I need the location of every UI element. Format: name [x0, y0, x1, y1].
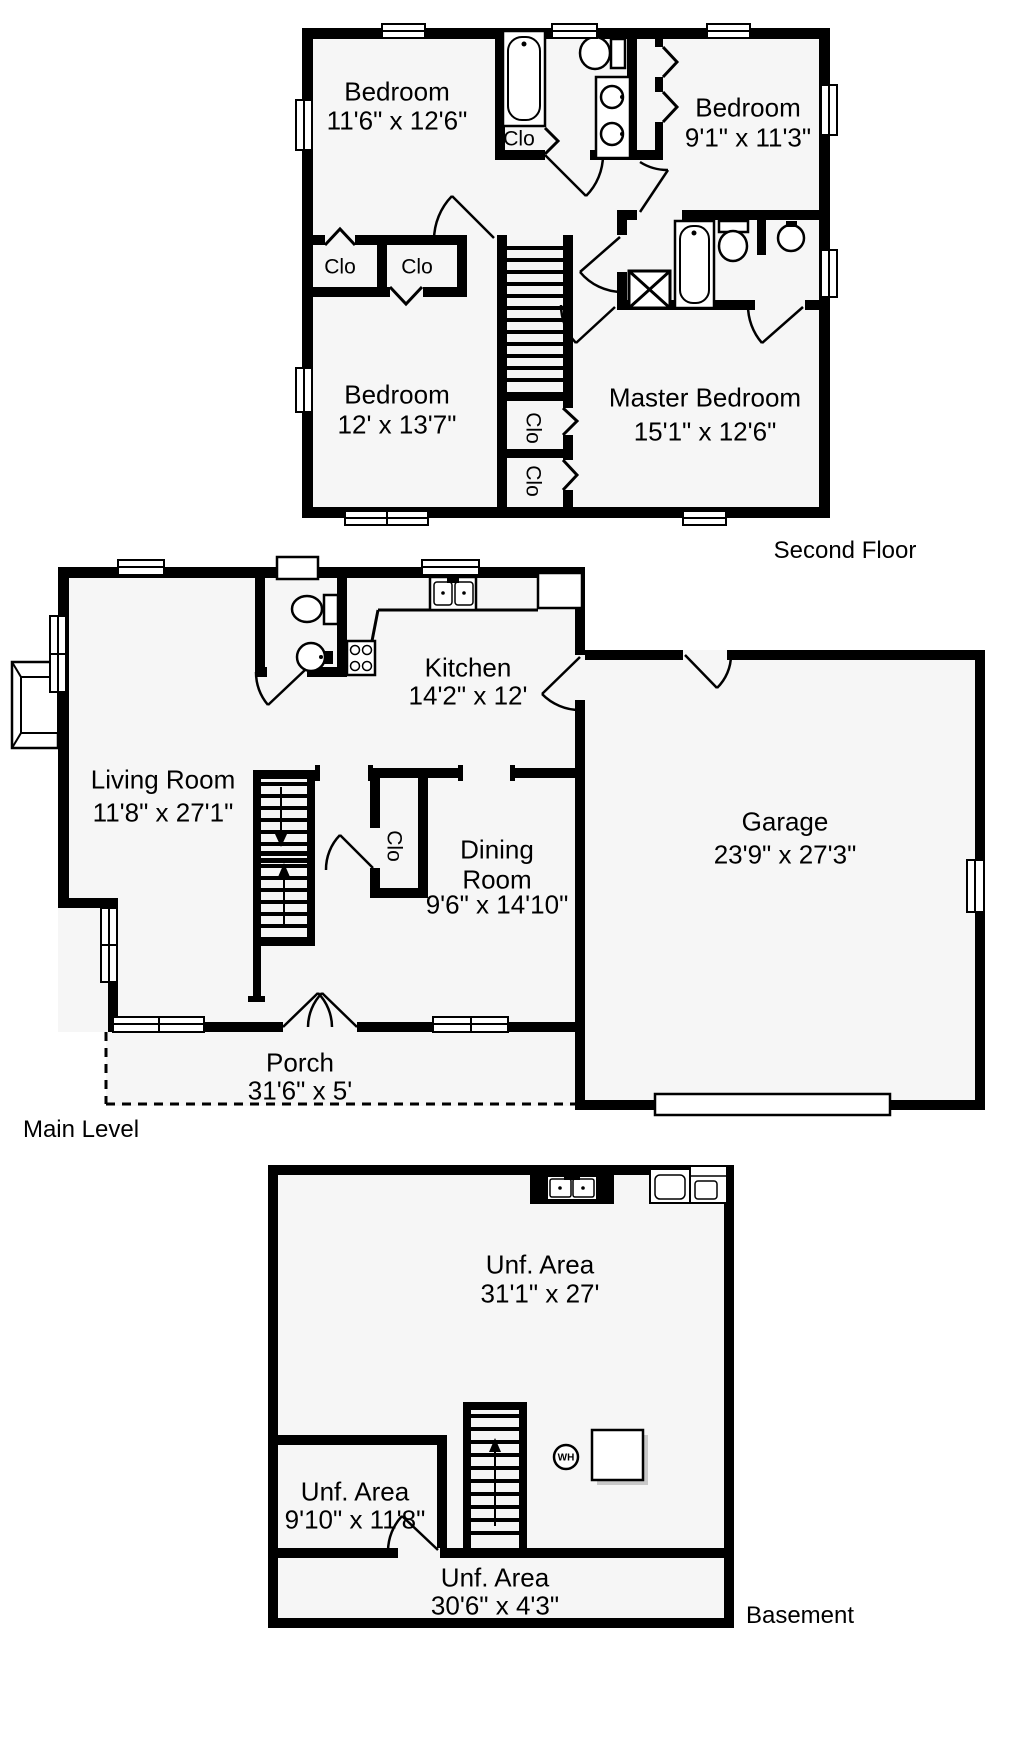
washer-icon	[650, 1169, 690, 1203]
closet-label: Clo	[382, 830, 405, 862]
room-dims-unf-area-main: 31'1" x 27'	[481, 1280, 600, 1309]
closet-label: Clo	[503, 127, 535, 150]
stove-icon	[347, 641, 375, 675]
room-label-garage: Garage	[742, 808, 829, 837]
room-dims-master-bedroom: 15'1" x 12'6"	[634, 418, 777, 447]
room-label-unf-area-main: Unf. Area	[486, 1251, 594, 1280]
basement-area	[268, 1165, 734, 1628]
room-dims-bedroom-bottom-left: 12' x 13'7"	[338, 411, 457, 440]
closet-label: Clo	[521, 465, 544, 497]
room-dims-living-room: 11'8" x 27'1"	[93, 799, 234, 828]
closet-label: Clo	[401, 255, 433, 278]
room-dims-unf-area-strip: 30'6" x 4'3"	[431, 1592, 559, 1621]
bathtub-icon	[675, 221, 714, 308]
floorplan-page: Bedroom 11'6" x 12'6" Bedroom 9'1" x 11'…	[0, 0, 1013, 1745]
room-label-kitchen: Kitchen	[425, 654, 512, 683]
furnace-icon	[592, 1430, 648, 1485]
room-label-porch: Porch	[266, 1049, 334, 1078]
room-label-unf-area-small: Unf. Area	[301, 1478, 409, 1507]
closet-label: Clo	[324, 255, 356, 278]
laundry-sink-icon	[547, 1176, 597, 1200]
room-dims-garage: 23'9" x 27'3"	[714, 841, 857, 870]
room-label-living-room: Living Room	[91, 766, 236, 795]
water-heater-label: WH	[558, 1453, 575, 1464]
room-label-bedroom-bottom-left: Bedroom	[344, 381, 450, 410]
basement-plan	[268, 1165, 734, 1628]
garage-door	[655, 1094, 890, 1115]
floor-title-second: Second Floor	[774, 538, 917, 564]
floor-title-main: Main Level	[23, 1117, 139, 1143]
toilet-icon	[580, 37, 625, 69]
room-dims-bedroom-top-right: 9'1" x 11'3"	[685, 124, 811, 153]
room-label-unf-area-strip: Unf. Area	[441, 1564, 549, 1593]
garage-area	[585, 650, 985, 1110]
room-label-dining-room: Dining	[460, 836, 534, 865]
room-dims-unf-area-small: 9'10" x 11'8"	[285, 1506, 426, 1535]
room-label-bedroom-top-left: Bedroom	[344, 78, 450, 107]
linen-cabinet-icon	[629, 271, 670, 308]
room-label-bedroom-top-right: Bedroom	[695, 94, 801, 123]
floor-title-basement: Basement	[746, 1603, 854, 1629]
room-dims-kitchen: 14'2" x 12'	[409, 682, 528, 711]
dryer-icon	[690, 1166, 727, 1203]
double-sink-icon	[596, 77, 630, 158]
toilet-icon	[719, 221, 748, 261]
closet-label: Clo	[521, 412, 544, 444]
room-dims-bedroom-top-left: 11'6" x 12'6"	[327, 107, 468, 136]
toilet-icon	[292, 595, 338, 624]
refrigerator-icon	[538, 573, 582, 608]
back-door	[277, 557, 318, 579]
bathtub-icon	[503, 31, 545, 126]
room-dims-porch: 31'6" x 5'	[248, 1077, 352, 1106]
room-dims-dining-room: 9'6" x 14'10"	[426, 891, 569, 920]
kitchen-sink-icon	[430, 577, 476, 610]
room-label-master-bedroom: Master Bedroom	[609, 384, 801, 413]
